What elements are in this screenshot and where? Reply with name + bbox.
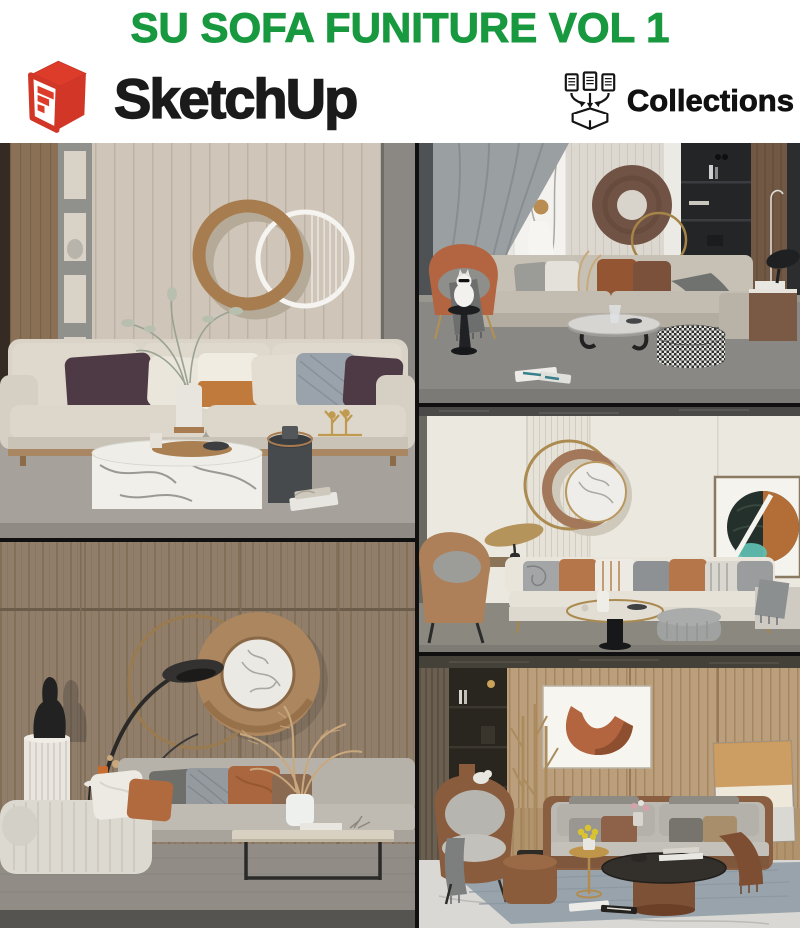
poster-title: SU SOFA FUNITURE VOL 1 bbox=[0, 4, 800, 52]
scene-3-illustration bbox=[419, 407, 800, 652]
collections-box-icon bbox=[559, 70, 621, 132]
scene-3 bbox=[419, 407, 800, 652]
sketchup-logo-icon bbox=[2, 52, 110, 144]
scene2-ottoman bbox=[657, 325, 725, 368]
scene-4-illustration bbox=[0, 542, 415, 928]
poster: SU SOFA FUNITURE VOL 1 SketchUp bbox=[0, 0, 800, 928]
collections-brand: Collections bbox=[559, 70, 794, 132]
photo-grid bbox=[0, 143, 800, 928]
scene-5-illustration bbox=[419, 656, 800, 928]
header: SU SOFA FUNITURE VOL 1 SketchUp bbox=[0, 0, 800, 143]
sketchup-wordmark: SketchUp bbox=[114, 66, 356, 131]
scene-1 bbox=[0, 143, 415, 538]
collections-label: Collections bbox=[627, 83, 794, 119]
scene5-pouf bbox=[503, 854, 557, 904]
scene-5 bbox=[419, 656, 800, 928]
scene4-vase bbox=[286, 794, 314, 826]
scene-2-illustration bbox=[419, 143, 800, 403]
sketchup-brand: SketchUp bbox=[2, 52, 356, 144]
scene-1-illustration bbox=[0, 143, 415, 538]
scene-4 bbox=[0, 542, 415, 928]
scene3-pouf bbox=[657, 608, 721, 641]
scene-2 bbox=[419, 143, 800, 403]
